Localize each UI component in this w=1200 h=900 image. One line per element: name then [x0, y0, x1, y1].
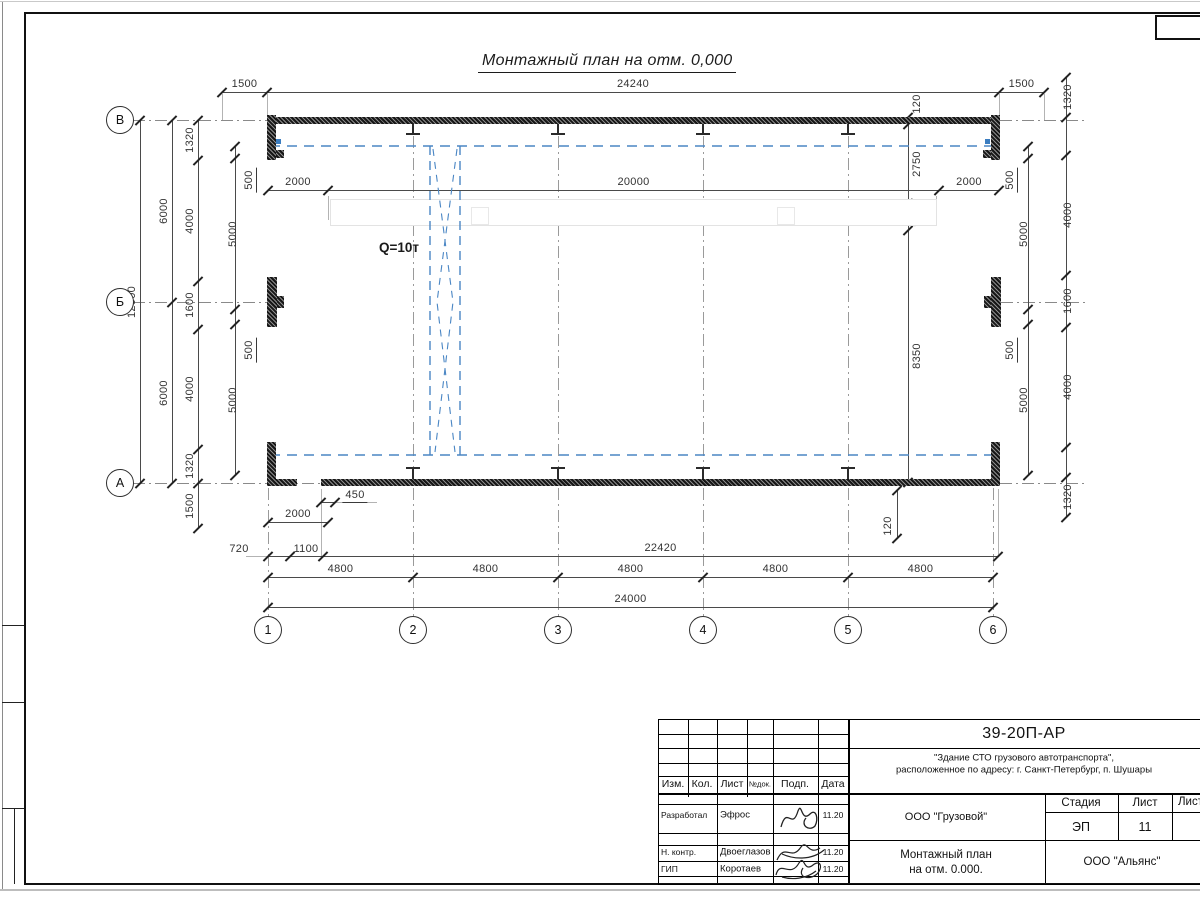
extension-line — [998, 489, 999, 556]
dimension-label: 1100 — [294, 543, 319, 555]
signature-developer — [777, 801, 823, 833]
title-block-header-col: №док. — [749, 780, 771, 789]
dimension-label: 22420 — [644, 542, 676, 554]
sheets-label: Листов — [1178, 796, 1200, 808]
approval-name: Коротаев — [720, 864, 761, 875]
wall-pier-right — [991, 277, 1001, 327]
dimension-line — [222, 92, 1044, 93]
object-name-line2: расположенное по адресу: г. Санкт-Петерб… — [896, 765, 1152, 776]
approval-role: Н. контр. — [661, 847, 696, 857]
dimension-label: 4800 — [473, 563, 499, 575]
approval-name: Эфрос — [720, 810, 750, 821]
wall-bottom — [321, 479, 999, 486]
dimension-line — [268, 607, 993, 608]
dimension-label: 4000 — [184, 208, 196, 234]
drawing-name-line1: Монтажный план — [900, 849, 992, 861]
document-number: 39-20П-АР — [982, 725, 1066, 743]
wall-pier-right-notch — [984, 296, 991, 308]
column-symbol — [406, 467, 420, 469]
grid-axis-circle-col: 2 — [399, 616, 427, 644]
column-symbol — [412, 469, 414, 479]
object-name-line1: "Здание СТО грузового автотранспорта", — [934, 753, 1114, 764]
dimension-label: 120 — [882, 516, 894, 535]
column-symbol — [696, 467, 710, 469]
dimension-label: 1320 — [184, 127, 196, 153]
dimension-label: 1320 — [1062, 484, 1074, 510]
stage-value: ЭП — [1072, 820, 1090, 834]
drawing-name-line2: на отм. 0.000. — [909, 864, 983, 876]
grid-axis-circle-col: 5 — [834, 616, 862, 644]
dimension-label: 500 — [1004, 167, 1018, 192]
grid-axis-circle-row: Б — [106, 288, 134, 316]
column-symbol — [551, 133, 565, 135]
dimension-label: 6000 — [158, 198, 170, 224]
wall-corner-bottom-right — [991, 442, 1000, 486]
dimension-label: 1500 — [1009, 78, 1035, 90]
title-block-header-col: Изм. — [662, 778, 685, 790]
approval-role: ГИП — [661, 864, 678, 874]
dimension-label: 5000 — [227, 387, 239, 413]
approval-role: Разработал — [661, 810, 707, 820]
dimension-label: 24240 — [617, 78, 649, 90]
wall-foot-top-left — [276, 150, 284, 158]
grid-axis-circle-col: 4 — [689, 616, 717, 644]
dimension-label: 5000 — [1018, 387, 1030, 413]
title-block-header-col: Подп. — [781, 778, 809, 790]
title-block-header-col: Кол. — [692, 778, 713, 790]
title-block-header-col: Лист — [721, 778, 744, 790]
extension-line — [267, 94, 268, 115]
dimension-label: 5000 — [1018, 221, 1030, 247]
dimension-label: 5000 — [227, 221, 239, 247]
embed-mark-left — [276, 139, 281, 144]
grid-axis-line — [993, 488, 994, 616]
dimension-label: 500 — [243, 337, 257, 362]
column-symbol — [847, 469, 849, 479]
dimension-label: 720 — [229, 543, 248, 555]
dimension-label: 24000 — [614, 593, 646, 605]
wall-pier-left-notch — [277, 296, 284, 308]
column-symbol — [702, 469, 704, 479]
wall-return-top-left — [267, 115, 276, 160]
sheet-value: 11 — [1139, 820, 1152, 834]
sheet-label: Лист — [1133, 797, 1158, 809]
dimension-label: 4800 — [328, 563, 354, 575]
dimension-label: 4800 — [908, 563, 934, 575]
dimension-label: 1600 — [1062, 288, 1074, 314]
dimension-label: 450 — [342, 489, 367, 503]
column-symbol — [696, 133, 710, 135]
dimension-label: 1500 — [184, 493, 196, 519]
dimension-line — [897, 490, 898, 538]
column-symbol — [841, 467, 855, 469]
dimension-label: 500 — [1004, 337, 1018, 362]
crane-symbol — [265, 140, 1005, 462]
dimension-line — [268, 522, 328, 523]
grid-axis-line — [133, 120, 268, 121]
column-symbol — [551, 467, 565, 469]
dimension-label: 4800 — [618, 563, 644, 575]
dimension-label: 4000 — [1062, 374, 1074, 400]
grid-axis-circle-col: 1 — [254, 616, 282, 644]
stage-label: Стадия — [1061, 797, 1100, 809]
contractor-name: ООО "Альянс" — [1084, 856, 1161, 868]
signature-chief-engineer — [770, 853, 826, 881]
extension-line — [1044, 94, 1045, 120]
extension-line — [222, 94, 223, 120]
dimension-line — [268, 577, 993, 578]
wall-pier-left — [267, 277, 277, 327]
dimension-label: 500 — [243, 167, 257, 192]
dimension-label: 6000 — [158, 380, 170, 406]
dimension-label: 4000 — [1062, 202, 1074, 228]
dimension-label: 1500 — [232, 78, 258, 90]
dimension-label: 1320 — [184, 453, 196, 479]
dimension-line — [198, 120, 199, 528]
grid-axis-circle-row: А — [106, 469, 134, 497]
wall-foot-top-right — [983, 150, 991, 158]
approval-name: Двоеглазов — [720, 847, 771, 858]
approval-date: 11.20 — [823, 810, 844, 820]
grid-axis-line — [268, 488, 269, 616]
drawing-sheet: Монтажный план на отм. 0,000 15002424015… — [0, 0, 1200, 900]
dimension-label: 4800 — [763, 563, 789, 575]
column-symbol — [406, 133, 420, 135]
column-symbol — [557, 469, 559, 479]
embed-mark-right — [985, 139, 990, 144]
grid-axis-line — [1000, 120, 1085, 121]
grid-axis-circle-col: 6 — [979, 616, 1007, 644]
extension-line — [999, 94, 1000, 115]
approval-date: 11.20 — [823, 864, 844, 874]
crane-capacity-label: Q=10т — [379, 240, 419, 255]
wall-return-top-right — [991, 115, 1000, 160]
column-symbol — [841, 133, 855, 135]
client-name: ООО "Грузовой" — [905, 811, 987, 823]
grid-axis-circle-col: 3 — [544, 616, 572, 644]
title-block-header-col: Дата — [821, 778, 844, 790]
wall-top — [270, 117, 999, 124]
approval-date: 11.20 — [823, 847, 844, 857]
wall-corner-bottom-left-h — [267, 479, 297, 486]
grid-axis-line — [133, 483, 268, 484]
dimension-label: 1600 — [184, 292, 196, 318]
grid-axis-circle-row: В — [106, 106, 134, 134]
dimension-line — [140, 120, 141, 483]
dimension-line — [268, 556, 998, 557]
grid-axis-line — [133, 302, 267, 303]
dimension-label: 1320 — [1062, 84, 1074, 110]
dimension-label: 4000 — [184, 376, 196, 402]
dimension-label: 120 — [911, 94, 923, 113]
dimension-label: 2000 — [285, 508, 311, 520]
